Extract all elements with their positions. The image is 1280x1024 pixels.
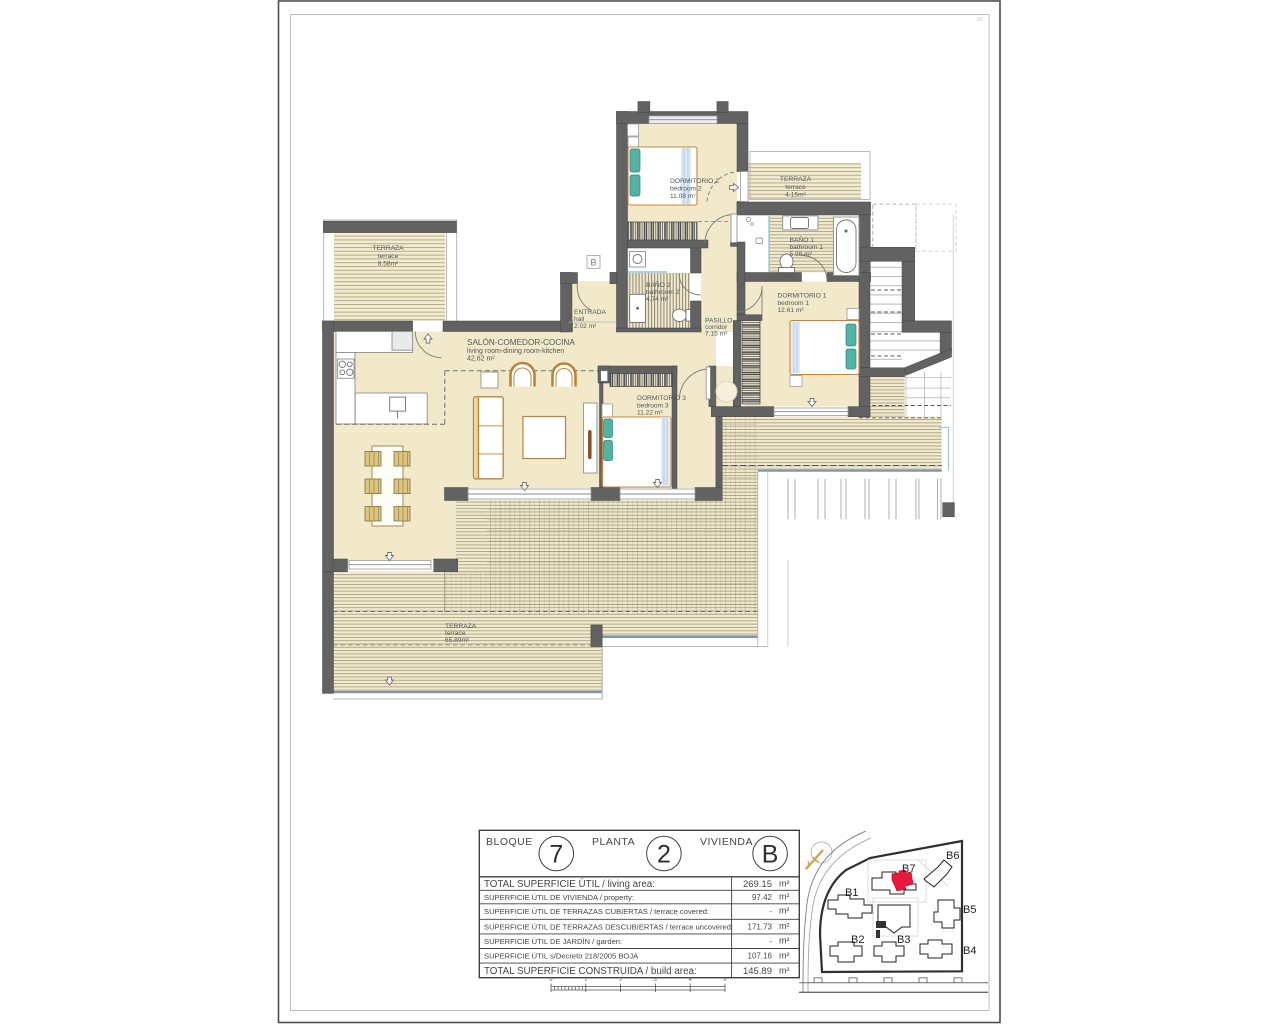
svg-text:terrace: terrace — [378, 253, 399, 260]
svg-text:SUPERFICIE ÚTIL s/Decreto 218/: SUPERFICIE ÚTIL s/Decreto 218/2005 BOJA — [484, 952, 639, 961]
svg-text:-: - — [769, 937, 772, 946]
svg-text:4.15m²: 4.15m² — [785, 192, 806, 199]
svg-text:m²: m² — [779, 892, 790, 902]
svg-text:B2: B2 — [851, 934, 864, 946]
svg-text:2: 2 — [619, 977, 622, 983]
svg-text:DORMITORIO 2: DORMITORIO 2 — [670, 178, 719, 185]
svg-text:BLOQUE: BLOQUE — [486, 836, 533, 848]
svg-text:8.58m²: 8.58m² — [378, 261, 399, 268]
svg-text:SUPERFICIE ÚTIL DE TERRAZAS CU: SUPERFICIE ÚTIL DE TERRAZAS CUBIERTAS / … — [484, 907, 709, 916]
svg-text:-: - — [769, 907, 772, 916]
svg-text:terrace: terrace — [785, 184, 806, 191]
svg-text:m²: m² — [779, 906, 790, 916]
svg-text:bedroom 3: bedroom 3 — [637, 403, 669, 410]
svg-text:2.02 m²: 2.02 m² — [574, 323, 597, 330]
svg-text:SUPERFICIE ÚTIL DE VIVIENDA /: SUPERFICIE ÚTIL DE VIVIENDA / property: — [484, 893, 634, 902]
svg-text:m²: m² — [779, 966, 790, 976]
svg-text:ENTRADA: ENTRADA — [574, 309, 606, 316]
svg-text:B: B — [762, 841, 779, 869]
svg-text:B5: B5 — [963, 904, 976, 916]
svg-text:7.15 m²: 7.15 m² — [705, 331, 728, 338]
svg-text:bathroom 1: bathroom 1 — [790, 244, 824, 251]
svg-text:SALÓN-COMEDOR-COCINA: SALÓN-COMEDOR-COCINA — [467, 337, 575, 347]
svg-text:SUPERFICIE ÚTIL DE JARDÍN / ga: SUPERFICIE ÚTIL DE JARDÍN / garden: — [484, 937, 622, 946]
svg-text:bathroom 2: bathroom 2 — [646, 289, 680, 296]
svg-text:145.89: 145.89 — [743, 966, 772, 977]
svg-text:m²: m² — [779, 950, 790, 960]
svg-text:2: 2 — [657, 841, 671, 869]
svg-text:1: 1 — [584, 977, 587, 983]
svg-text:TERRAZA: TERRAZA — [780, 176, 812, 183]
svg-text:terrace: terrace — [445, 630, 466, 637]
svg-text:PLANTA: PLANTA — [592, 836, 635, 848]
svg-text:B3: B3 — [897, 934, 910, 946]
svg-text:5: 5 — [724, 977, 727, 983]
svg-text:7: 7 — [549, 841, 563, 869]
svg-text:SUPERFICIE ÚTIL DE TERRAZAS DE: SUPERFICIE ÚTIL DE TERRAZAS DESCUBIERTAS… — [484, 923, 733, 932]
svg-text:107.16: 107.16 — [748, 952, 773, 961]
svg-text:B7: B7 — [902, 863, 915, 875]
svg-text:bedroom 1: bedroom 1 — [778, 300, 810, 307]
svg-text:11.08 m²: 11.08 m² — [670, 193, 696, 200]
svg-text:4: 4 — [689, 977, 692, 983]
svg-text:B: B — [590, 258, 596, 268]
svg-text:B6: B6 — [946, 850, 959, 862]
svg-text:3: 3 — [654, 977, 657, 983]
svg-text:11.22 m²: 11.22 m² — [637, 410, 663, 417]
svg-text:65.89m²: 65.89m² — [445, 637, 470, 644]
svg-text:hall: hall — [574, 316, 585, 323]
svg-text:B4: B4 — [963, 945, 976, 957]
svg-text:bedroom 2: bedroom 2 — [670, 186, 702, 193]
svg-text:12.61 m²: 12.61 m² — [778, 307, 805, 314]
svg-text:BAÑO 1: BAÑO 1 — [790, 235, 815, 244]
svg-text:m²: m² — [779, 936, 790, 946]
svg-text:TOTAL SUPERFICIE ÚTIL / living: TOTAL SUPERFICIE ÚTIL / living area: — [484, 879, 655, 890]
svg-text:m²: m² — [779, 921, 790, 931]
svg-text:171.73: 171.73 — [748, 923, 773, 932]
svg-text:BAÑO 2: BAÑO 2 — [646, 280, 671, 289]
svg-text:TOTAL SUPERFICIE CONSTRUIDA /: TOTAL SUPERFICIE CONSTRUIDA / build area… — [484, 966, 697, 977]
svg-text:4.74 m²: 4.74 m² — [646, 296, 669, 303]
svg-text:42,62 m²: 42,62 m² — [467, 356, 495, 363]
svg-text:5.98 m²: 5.98 m² — [790, 251, 813, 258]
svg-text:TERRAZA: TERRAZA — [372, 245, 404, 252]
svg-text:B1: B1 — [845, 887, 858, 899]
svg-text:97.42: 97.42 — [752, 893, 773, 902]
svg-text:VIVIENDA: VIVIENDA — [700, 836, 753, 848]
svg-text:269.15: 269.15 — [743, 879, 772, 890]
svg-text:living room-dining room-kitche: living room-dining room-kitchen — [467, 348, 564, 355]
svg-text:m²: m² — [779, 879, 790, 889]
svg-text:0: 0 — [550, 977, 553, 983]
svg-text:02: 02 — [977, 17, 983, 23]
svg-text:DORMITORIO 3: DORMITORIO 3 — [637, 395, 686, 402]
svg-text:DORMITORIO 1: DORMITORIO 1 — [778, 293, 827, 300]
svg-text:TERRAZA: TERRAZA — [445, 623, 477, 630]
